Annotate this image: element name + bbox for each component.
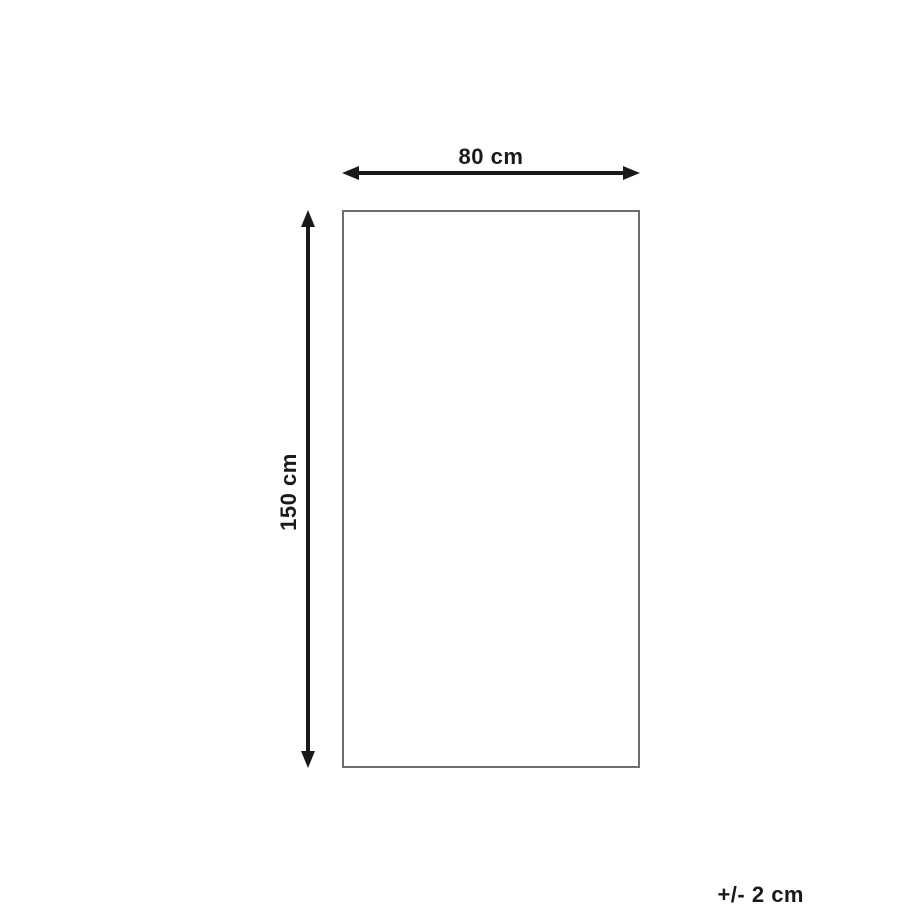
height-dimension-arrow <box>301 210 315 768</box>
height-dimension-label: 150 cm <box>276 453 302 531</box>
arrow-down-head-icon <box>301 751 315 768</box>
arrow-right-head-icon <box>623 166 640 180</box>
dimension-diagram: 80 cm 150 cm +/- 2 cm <box>0 0 920 920</box>
tolerance-label: +/- 2 cm <box>717 882 804 908</box>
product-outline-rectangle <box>342 210 640 768</box>
arrow-shaft <box>350 171 632 175</box>
arrow-shaft <box>306 218 310 760</box>
width-dimension-label: 80 cm <box>459 144 524 170</box>
